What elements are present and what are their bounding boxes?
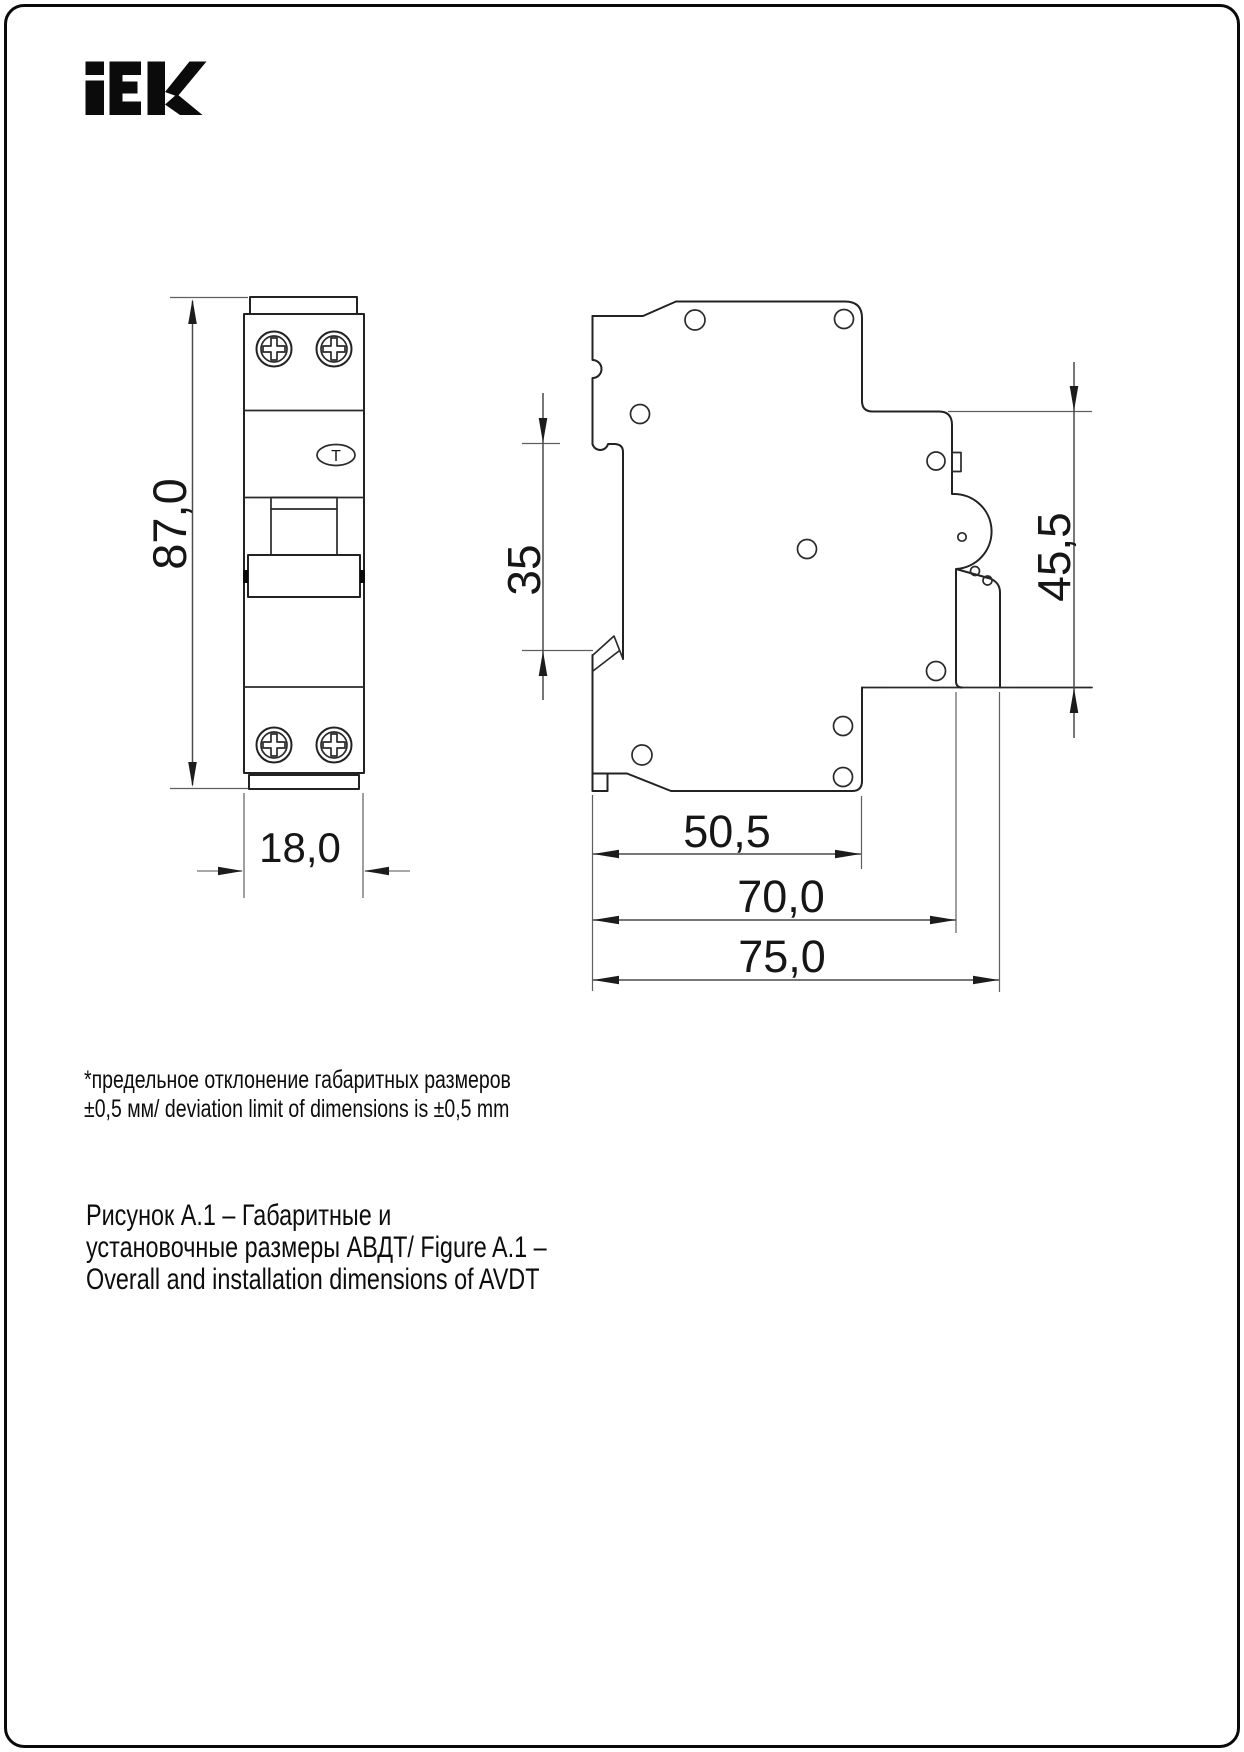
arrow-up-icon (188, 299, 197, 324)
side-dimensions: 35 45,5 50,5 (498, 362, 1092, 992)
clip-pivot-hole (958, 533, 966, 541)
label-plate-right-tab (360, 570, 365, 583)
dim-depth-rail: 70,0 (593, 692, 956, 933)
arrow-right-icon (835, 850, 861, 859)
logo-e-bottom-arm (110, 102, 142, 116)
din-rail-slot-wall (593, 444, 624, 659)
logo-e-top-arm (110, 62, 142, 76)
phillips-cross-icon (263, 338, 285, 360)
front-body (244, 314, 364, 773)
arrow-up-icon (539, 651, 548, 676)
case-hole (798, 540, 817, 559)
arrow-left-icon (593, 976, 619, 985)
screw-inner-icon (261, 336, 287, 362)
din-clip-end-cap (593, 774, 608, 792)
test-button-label: T (331, 448, 341, 465)
screw-inner-icon (321, 336, 347, 362)
phillips-cross-icon (323, 338, 345, 360)
dim-value: 35 (498, 544, 550, 595)
screw-inner-icon (321, 732, 347, 758)
logo-e-mid-arm (110, 82, 138, 94)
toggle-recess (271, 498, 337, 556)
note-line-2: ±0,5 мм/ deviation limit of dimensions i… (84, 1095, 511, 1124)
din-latch-spring-line (593, 651, 619, 671)
side-front-upper-edge (593, 316, 602, 444)
dim-front-width: 18,0 (197, 793, 410, 898)
logo-i-dot (86, 62, 105, 76)
side-outline-upper (593, 302, 1001, 688)
test-button: T (317, 445, 355, 466)
arrow-left-icon (593, 850, 619, 859)
caption-line-3: Overall and installation dimensions of A… (86, 1264, 547, 1296)
dim-value: 70,0 (737, 871, 825, 922)
phillips-cross-icon (323, 734, 345, 756)
figure-caption: Рисунок А.1 – Габаритные и установочные … (86, 1200, 547, 1296)
case-holes (631, 310, 993, 787)
case-hole (834, 717, 853, 736)
front-bottom-terminal-plate (249, 775, 359, 789)
terminal-screw-top-right (317, 332, 352, 367)
caption-line-2: установочные размеры АВДТ/ Figure A.1 – (86, 1232, 547, 1264)
deviation-note: *предельное отклонение габаритных размер… (84, 1066, 511, 1124)
technical-drawing: T 87,0 (0, 0, 1244, 1752)
arrow-right-icon (973, 976, 999, 985)
logo-k-lower-arm (165, 94, 203, 115)
case-hole (927, 662, 946, 681)
figure-page: T 87,0 (0, 0, 1244, 1752)
arrow-left-icon (593, 916, 619, 925)
terminal-screw-bottom-left (257, 728, 292, 763)
arrow-right-icon (930, 916, 956, 925)
case-hole (632, 745, 652, 765)
screw-inner-icon (261, 732, 287, 758)
dim-din-slot: 35 (498, 393, 593, 700)
dim-rear-height: 45,5 (948, 362, 1092, 738)
logo-k-upper-arm (165, 62, 207, 97)
arrow-right-icon (218, 867, 243, 875)
note-line-1: *предельное отклонение габаритных размер… (84, 1066, 511, 1095)
dim-value: 50,5 (683, 806, 771, 857)
case-hole (685, 310, 705, 330)
dim-front-height: 87,0 (143, 298, 248, 789)
front-top-terminal-plate (250, 297, 357, 314)
logo-i-stem (86, 81, 105, 116)
side-outline-lower (608, 688, 863, 792)
iek-logo (86, 62, 207, 116)
dim-value: 18,0 (259, 824, 341, 871)
label-plate (243, 555, 365, 597)
dim-value: 45,5 (1028, 512, 1080, 602)
rear-notch (952, 453, 961, 472)
case-hole (835, 310, 854, 329)
dim-depth-total: 75,0 (593, 692, 1000, 992)
dim-depth-case: 50,5 (593, 796, 862, 869)
front-view: T (243, 297, 365, 789)
arrow-up-icon (1070, 688, 1079, 713)
case-hole (834, 768, 853, 787)
arrow-down-icon (188, 762, 197, 787)
case-hole (927, 452, 945, 470)
case-hole (631, 405, 650, 424)
terminal-screw-top-left (257, 332, 292, 367)
terminal-screw-bottom-right (317, 728, 352, 763)
dim-value: 87,0 (143, 478, 196, 569)
phillips-cross-icon (263, 734, 285, 756)
logo-k-stem (148, 62, 166, 116)
arrow-down-icon (1070, 386, 1079, 411)
caption-line-1: Рисунок А.1 – Габаритные и (86, 1200, 547, 1232)
arrow-left-icon (364, 867, 389, 875)
side-view (593, 302, 1093, 792)
label-plate-left-tab (243, 570, 248, 583)
label-plate-window (248, 555, 360, 597)
din-latch-hook (593, 636, 623, 659)
dim-value: 75,0 (738, 931, 826, 982)
arrow-down-icon (539, 418, 548, 443)
toggle-handle (271, 498, 337, 556)
din-clip-leg (956, 570, 962, 688)
